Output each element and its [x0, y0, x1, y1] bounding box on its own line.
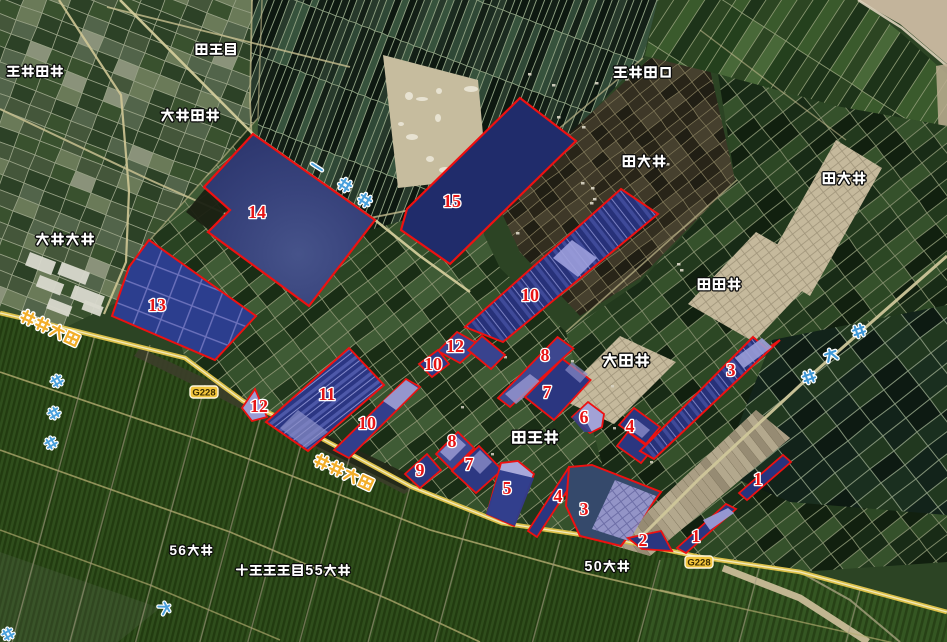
- svg-text:G228: G228: [687, 558, 710, 569]
- svg-text:3: 3: [727, 360, 736, 380]
- svg-text:5: 5: [305, 563, 313, 579]
- svg-text:10: 10: [358, 413, 376, 433]
- svg-text:G228: G228: [192, 388, 215, 399]
- svg-text:7: 7: [543, 382, 552, 402]
- svg-text:15: 15: [443, 191, 461, 211]
- svg-text:10: 10: [521, 285, 539, 305]
- svg-text:11: 11: [318, 384, 335, 404]
- svg-text:8: 8: [448, 431, 457, 451]
- svg-text:4: 4: [554, 486, 563, 506]
- svg-text:10: 10: [424, 354, 442, 374]
- svg-text:13: 13: [148, 295, 166, 315]
- svg-text:1: 1: [692, 526, 701, 546]
- svg-text:14: 14: [248, 202, 266, 222]
- svg-text:12: 12: [446, 336, 464, 356]
- svg-text:7: 7: [465, 454, 474, 474]
- svg-text:6: 6: [580, 407, 589, 427]
- svg-text:1: 1: [754, 469, 763, 489]
- svg-text:12: 12: [250, 396, 268, 416]
- svg-text:2: 2: [639, 530, 648, 550]
- svg-text:4: 4: [626, 416, 635, 436]
- svg-text:5: 5: [169, 543, 177, 558]
- svg-text:0: 0: [594, 559, 602, 575]
- svg-text:6: 6: [178, 543, 186, 558]
- svg-text:5: 5: [503, 478, 512, 498]
- svg-text:8: 8: [541, 345, 550, 365]
- svg-text:3: 3: [580, 499, 589, 519]
- svg-text:5: 5: [315, 563, 323, 579]
- svg-text:5: 5: [584, 559, 592, 575]
- svg-text:9: 9: [416, 460, 425, 480]
